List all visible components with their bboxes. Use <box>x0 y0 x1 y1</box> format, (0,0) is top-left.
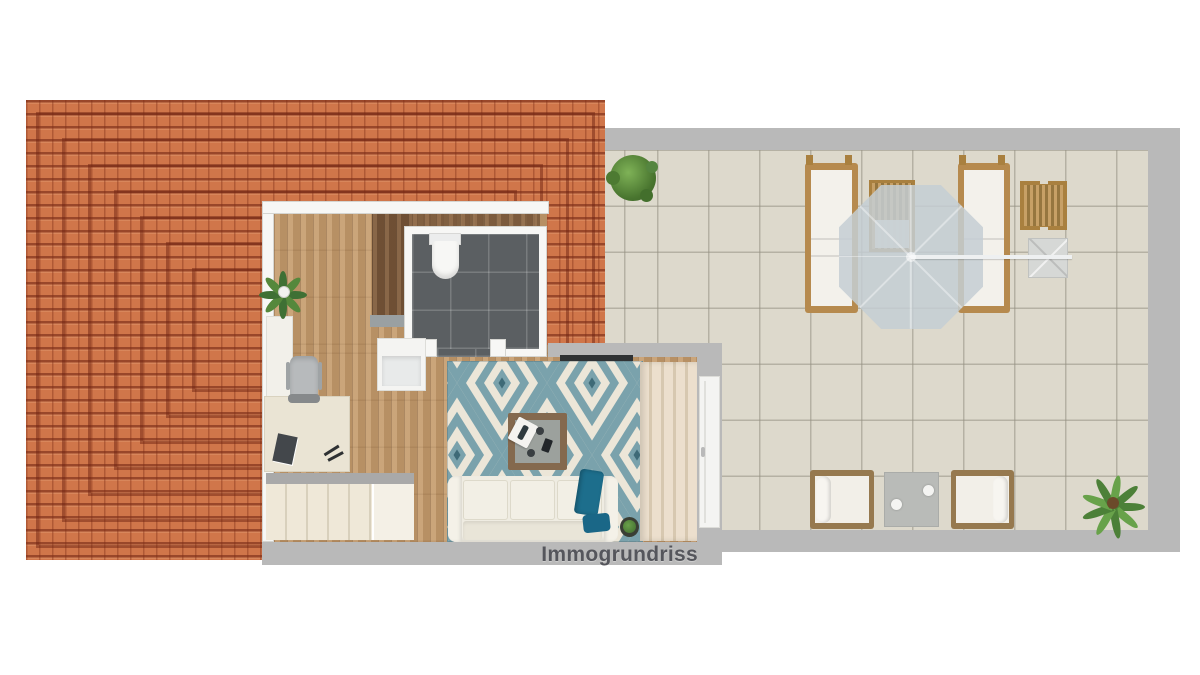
stair-landing <box>372 484 414 540</box>
watermark: Immogrundriss <box>440 543 698 565</box>
sofa-armrest <box>448 476 462 542</box>
bush-plant <box>610 155 656 201</box>
pillow <box>582 513 611 534</box>
vertical-blinds <box>640 362 697 541</box>
chair-armrest <box>286 362 290 390</box>
potted-plant <box>620 517 639 537</box>
desk <box>264 396 350 472</box>
washbasin <box>382 356 421 386</box>
bush-foliage <box>606 171 620 185</box>
notebook <box>272 433 297 465</box>
terrace-wall-top <box>605 128 1180 150</box>
lounge-armchair-right <box>951 470 1014 529</box>
bottle <box>517 424 529 440</box>
bush-foliage <box>640 189 653 202</box>
plant-pot <box>278 286 290 298</box>
sofa-armrest <box>604 476 618 542</box>
cup <box>891 499 902 510</box>
stair-edge <box>266 473 414 484</box>
lounger-wheel <box>845 155 852 165</box>
parasol-hub <box>906 252 916 262</box>
terrace-wall-right <box>1148 128 1180 552</box>
cup <box>923 485 934 496</box>
toilet <box>432 241 459 279</box>
lounger-wheel <box>806 155 813 165</box>
lounger-wheel <box>959 155 966 165</box>
chair-backrest <box>288 394 320 403</box>
lounge-armchair-left <box>810 470 874 529</box>
staircase-steps <box>266 484 372 540</box>
terrace-wall-bottom <box>722 530 1180 552</box>
cup <box>536 427 544 435</box>
table-notch <box>1040 179 1048 184</box>
table-notch <box>1040 227 1048 232</box>
chair-armrest <box>318 362 322 390</box>
floor-plan-canvas: Immogrundriss <box>0 0 1200 675</box>
door-post <box>490 339 506 357</box>
plant-foliage <box>623 520 636 533</box>
sofa-backrest <box>463 521 602 540</box>
parasol-arm <box>911 255 1072 259</box>
counter-shelf <box>370 315 404 327</box>
seat-cushion <box>510 480 555 520</box>
apartment-wall-top <box>262 201 549 214</box>
door-handle <box>701 447 705 457</box>
bathroom-door-opening <box>437 349 490 357</box>
coffee-table <box>508 413 567 470</box>
armchair-backrest <box>993 476 1008 523</box>
slatted-side-table <box>1020 181 1067 230</box>
washbasin-cabinet <box>377 338 426 391</box>
outdoor-coffee-table <box>884 472 939 527</box>
cup <box>527 449 535 457</box>
armchair-backrest <box>816 476 831 523</box>
palm-trunk <box>1107 497 1119 509</box>
sliding-door <box>699 376 720 528</box>
lounger-wheel <box>998 155 1005 165</box>
seat-cushion <box>463 480 508 520</box>
bush-foliage <box>646 161 658 173</box>
